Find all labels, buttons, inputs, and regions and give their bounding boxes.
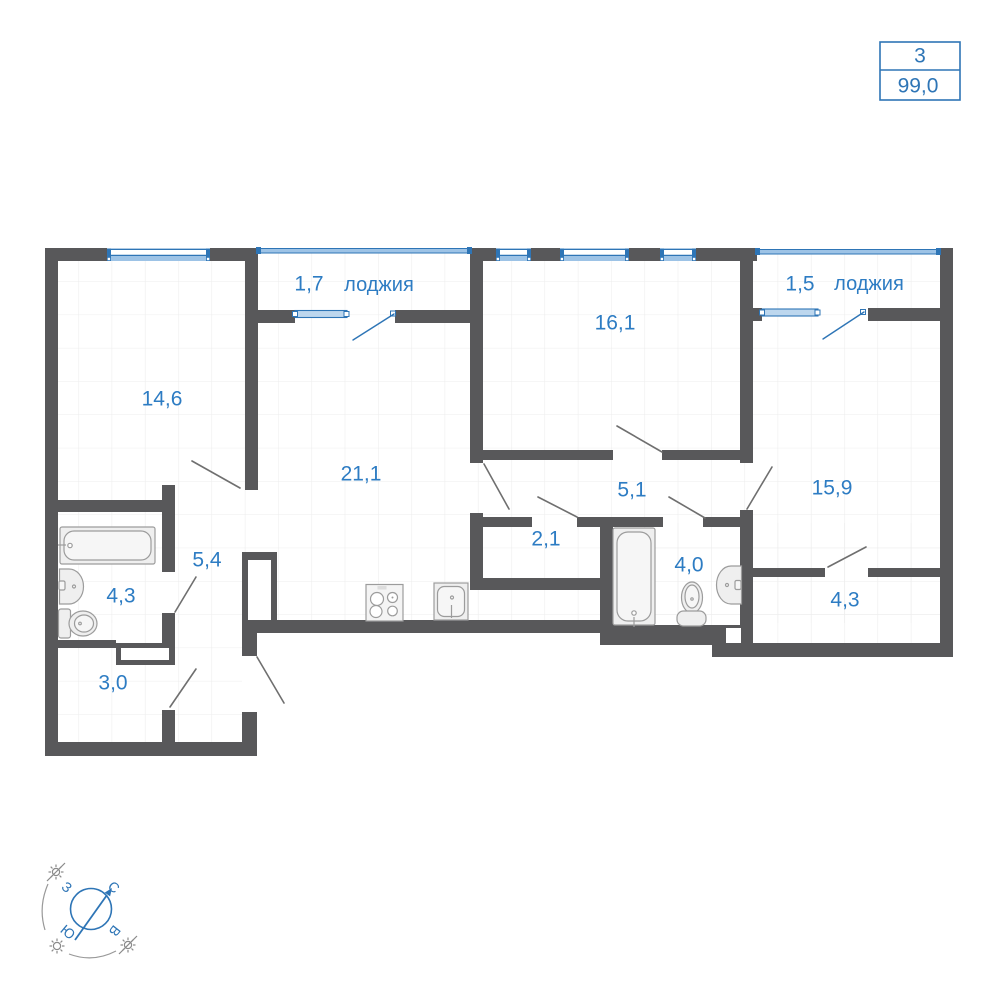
floor-plan-canvas: 14,6 1,7 лоджия 16,1 1,5 лоджия 21,1 5,1… — [0, 0, 1001, 1001]
window-room-16-1-a — [496, 249, 531, 262]
compass-west: З — [59, 878, 76, 896]
rooms-count: 3 — [914, 45, 926, 68]
window-room-16-1-c — [660, 249, 696, 262]
toilet-left — [59, 609, 98, 638]
compass-arc-west — [42, 884, 48, 930]
loggia-east-name: лоджия — [834, 273, 904, 295]
sun-icon-sw — [50, 939, 65, 954]
compass-east: В — [106, 922, 124, 939]
room-label-5-1: 5,1 — [617, 479, 646, 502]
bathtub-horizontal — [58, 527, 155, 564]
bathtub-vertical — [613, 528, 655, 627]
room-label-4-0: 4,0 — [674, 554, 703, 577]
sink-left-wall — [59, 569, 84, 604]
loggia-west-area: 1,7 — [294, 273, 323, 296]
floor-plan-page: 14,6 1,7 лоджия 16,1 1,5 лоджия 21,1 5,1… — [0, 0, 1001, 1001]
room-label-3-0: 3,0 — [98, 672, 127, 695]
info-box: 3 99,0 — [880, 42, 960, 100]
room-label-16-1: 16,1 — [595, 312, 636, 335]
window-room-16-1-b — [560, 249, 629, 262]
loggia-east-area: 1,5 — [785, 273, 814, 296]
room-label-2-1: 2,1 — [531, 528, 560, 551]
compass: С В Ю З — [42, 863, 137, 958]
room-label-21-1: 21,1 — [341, 463, 382, 486]
loggia-west-name: лоджия — [344, 274, 414, 296]
room-label-14-6: 14,6 — [142, 388, 183, 411]
kitchen-sink — [434, 583, 468, 620]
room-label-4-3-left: 4,3 — [106, 585, 135, 608]
total-area: 99,0 — [898, 75, 939, 98]
compass-circle — [71, 889, 112, 930]
compass-needle — [75, 895, 107, 940]
compass-arc-south — [69, 951, 116, 958]
room-label-15-9: 15,9 — [812, 477, 853, 500]
room-label-5-4: 5,4 — [192, 549, 222, 572]
room-label-4-3-right: 4,3 — [830, 589, 859, 612]
stove — [366, 585, 403, 622]
loggia-west-glazing — [256, 247, 472, 254]
window-room-14-6 — [107, 249, 210, 262]
entrance-door — [257, 657, 284, 703]
sink-right-wall — [717, 566, 742, 604]
loggia-east-glazing — [755, 248, 941, 255]
